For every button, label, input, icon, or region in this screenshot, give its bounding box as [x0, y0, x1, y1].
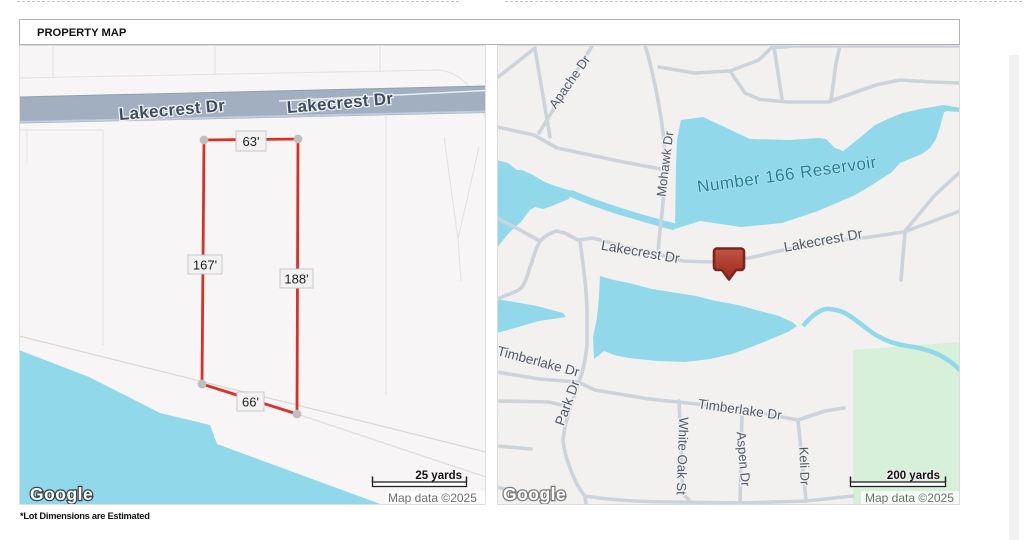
svg-text:25 yards: 25 yards	[415, 470, 462, 482]
svg-text:167': 167'	[193, 258, 217, 273]
svg-text:Google: Google	[30, 484, 93, 504]
svg-text:Google: Google	[503, 484, 566, 504]
svg-text:Map data ©2025: Map data ©2025	[865, 491, 954, 505]
svg-text:Map data ©2025: Map data ©2025	[388, 491, 477, 505]
svg-text:Keli Dr: Keli Dr	[796, 447, 812, 487]
svg-text:200 yards: 200 yards	[887, 470, 940, 482]
svg-text:White Oak St: White Oak St	[674, 417, 692, 495]
svg-text:66': 66'	[242, 395, 259, 410]
svg-text:188': 188'	[284, 272, 308, 287]
svg-text:63': 63'	[243, 134, 260, 149]
